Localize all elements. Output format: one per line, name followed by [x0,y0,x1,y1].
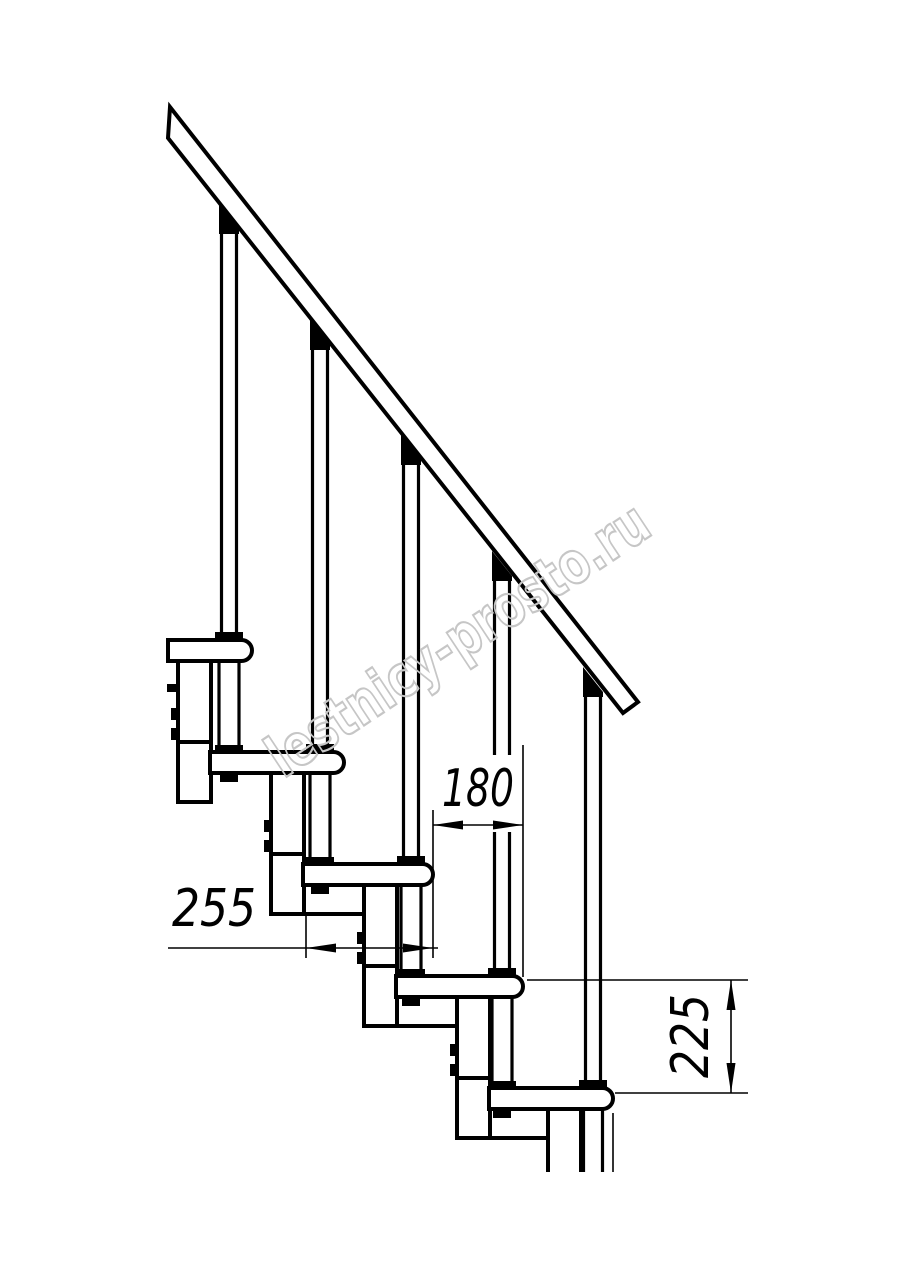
dimension-225: 225 [661,980,736,1093]
drawing-page: 180 255 225 lestnicy-prosto.ru [0,0,914,1280]
inter-step-pipe-3 [401,885,421,969]
dimension-180-label: 180 [442,759,514,819]
dimension-255-label: 255 [172,879,256,939]
pipe-nut-3 [311,885,329,894]
pipe-nut-4 [402,997,420,1006]
pipe-mount-3 [306,857,334,864]
pipe-mount-2 [215,745,243,752]
baluster-base-1 [215,632,243,640]
baluster-5 [586,695,601,1088]
column-5-cut [548,1109,581,1172]
dimension-180: 180 [433,759,523,830]
baluster-1 [222,232,237,640]
staircase-technical-drawing: 180 255 225 lestnicy-prosto.ru [0,0,914,1280]
baluster-base-4 [488,968,516,976]
pipe-nut-5 [493,1109,511,1118]
pipe-mount-4 [397,969,425,976]
inter-step-pipe-5-cut [584,1109,603,1172]
baluster-base-5 [579,1080,607,1088]
pipe-mount-5 [488,1081,516,1088]
baluster-base-3 [397,856,425,864]
pipe-nut-2 [220,773,238,782]
tread-5 [489,1088,613,1109]
column-1 [167,661,211,802]
inter-step-pipe-2 [310,773,330,857]
cropped-bracket [167,684,178,692]
inter-step-pipe-4 [492,997,512,1081]
tread-3 [303,864,433,885]
tread-4 [396,976,523,997]
tread-1 [168,640,252,661]
dimension-225-label: 225 [661,994,721,1078]
inter-step-pipe-1 [219,661,239,745]
